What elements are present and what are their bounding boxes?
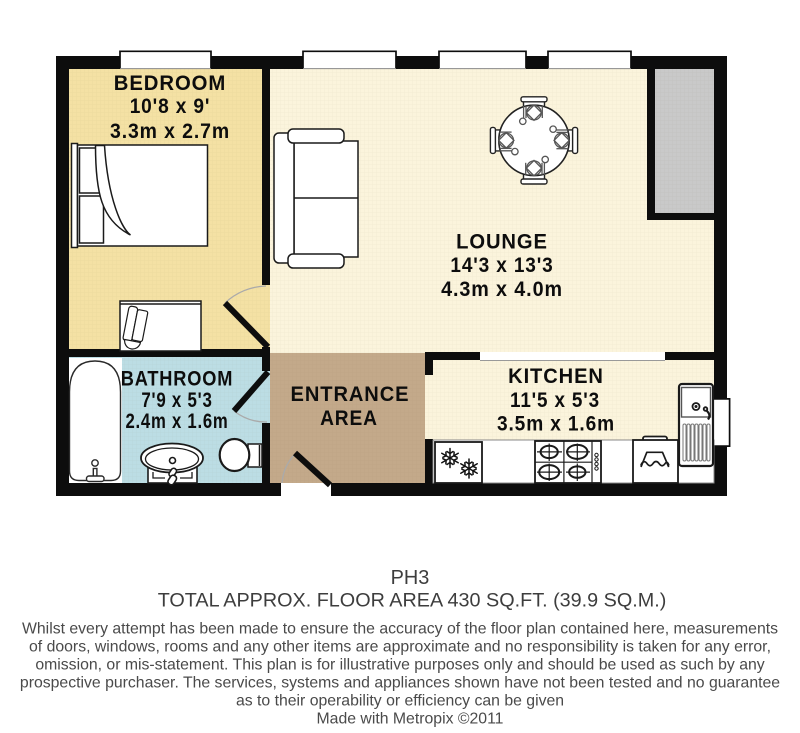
svg-text:2.4m x 1.6m: 2.4m x 1.6m (126, 410, 229, 433)
svg-text:ENTRANCE: ENTRANCE (291, 383, 410, 406)
svg-text:3.3m x 2.7m: 3.3m x 2.7m (110, 120, 230, 143)
svg-text:KITCHEN: KITCHEN (508, 365, 604, 388)
svg-text:prospective purchaser. The ser: prospective purchaser. The services, sys… (20, 675, 780, 692)
svg-text:Made with Metropix ©2011: Made with Metropix ©2011 (317, 711, 504, 728)
svg-text:of doors, windows, rooms and a: of doors, windows, rooms and any other i… (29, 639, 771, 656)
svg-text:TOTAL APPROX. FLOOR AREA 430 S: TOTAL APPROX. FLOOR AREA 430 SQ.FT. (39.… (158, 590, 667, 612)
svg-text:Whilst every attempt has been: Whilst every attempt has been made to en… (22, 621, 778, 638)
svg-text:4.3m x 4.0m: 4.3m x 4.0m (441, 278, 563, 301)
svg-text:11'5 x 5'3: 11'5 x 5'3 (510, 389, 600, 412)
svg-text:PH3: PH3 (391, 567, 430, 589)
svg-text:10'8 x 9': 10'8 x 9' (130, 95, 211, 118)
svg-text:3.5m x 1.6m: 3.5m x 1.6m (497, 413, 615, 436)
svg-text:BEDROOM: BEDROOM (114, 72, 227, 95)
svg-text:omission, or mis-statement. Th: omission, or mis-statement. This plan is… (35, 657, 764, 674)
svg-text:as to their operability or eff: as to their operability or efficiency ca… (236, 693, 564, 710)
svg-text:AREA: AREA (320, 407, 378, 430)
svg-text:14'3 x 13'3: 14'3 x 13'3 (450, 254, 553, 277)
svg-text:LOUNGE: LOUNGE (456, 231, 548, 254)
svg-text:BATHROOM: BATHROOM (121, 368, 234, 391)
svg-text:7'9 x 5'3: 7'9 x 5'3 (141, 389, 212, 412)
